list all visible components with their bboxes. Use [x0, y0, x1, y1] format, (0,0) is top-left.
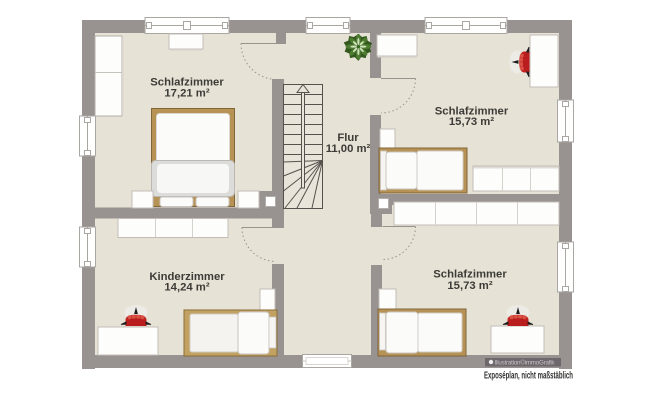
svg-text:14,24 m²: 14,24 m²	[164, 282, 209, 294]
svg-text:Schlafzimmer: Schlafzimmer	[433, 268, 507, 280]
svg-text:11,00 m²: 11,00 m²	[326, 143, 371, 155]
svg-text:17,21 m²: 17,21 m²	[164, 88, 209, 100]
svg-text:Exposéplan, nicht maßstäblich: Exposéplan, nicht maßstäblich	[484, 371, 573, 382]
svg-text:15,73 m²: 15,73 m²	[447, 280, 492, 292]
svg-text:Illustration©immoGrafik: Illustration©immoGrafik	[495, 359, 556, 366]
svg-text:15,73 m²: 15,73 m²	[449, 116, 494, 128]
